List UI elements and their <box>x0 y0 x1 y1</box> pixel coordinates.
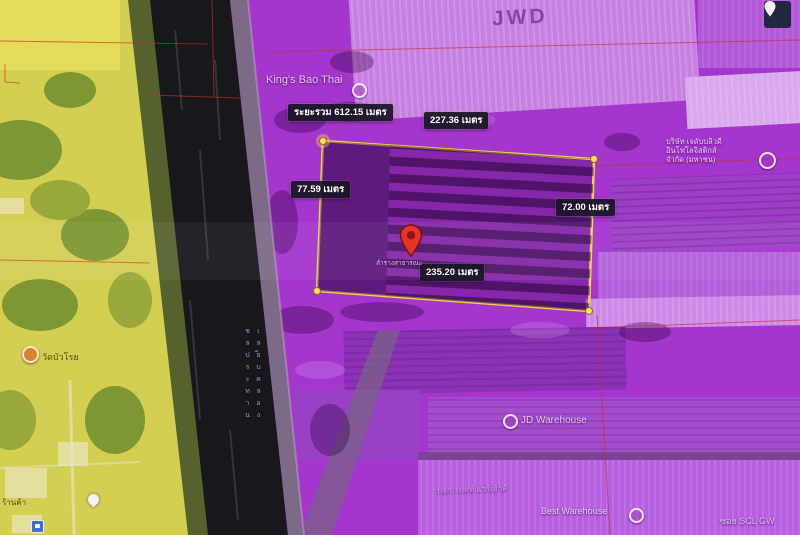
map-pin-icon <box>398 223 424 259</box>
road-name-label: เลียบคลองชลประทาน <box>242 326 264 456</box>
measurement-chip-right: 72.00 เมตร <box>556 199 615 216</box>
poi-marker-jd-warehouse[interactable] <box>503 414 518 429</box>
measurement-chip-total: ระยะรวม 612.15 เมตร <box>288 104 393 121</box>
place-label-shop: ร้านค้า <box>2 496 26 509</box>
measurement-chip-bottom: 235.20 เมตร <box>420 264 484 281</box>
measurement-chip-left: 77.59 เมตร <box>291 181 350 198</box>
map-pin-button[interactable] <box>764 1 791 28</box>
place-label-temple: วัดบัวโรย <box>42 350 79 364</box>
place-label-kings-bao: King's Bao Thai <box>266 74 343 86</box>
poi-marker-best-warehouse[interactable] <box>629 508 644 523</box>
place-label-jd-warehouse: JD Warehouse <box>521 415 587 426</box>
poi-marker-kings-bao[interactable] <box>352 83 367 98</box>
map-canvas[interactable]: JWD King's Bao Thai บริษัท เจดับบลิวดี อ… <box>0 0 800 535</box>
transit-stop-icon[interactable] <box>31 520 44 533</box>
poi-marker-temple[interactable] <box>22 346 39 363</box>
place-label-soi: ซอย SCL GW <box>720 514 774 528</box>
place-label-company: บริษัท เจดับบลิวดี อินโฟโลจิสติกส์ จำกัด… <box>666 137 760 164</box>
pin-glyph-icon <box>764 1 776 17</box>
place-label-best-company: บจก. เบสท์ แวร์เฮ้าส์ <box>437 482 508 497</box>
poi-marker-company[interactable] <box>759 152 776 169</box>
place-label-best-warehouse: Best Warehouse <box>541 506 607 516</box>
pin-caption: ลำรางสาธารณะ <box>376 258 422 268</box>
measurement-chip-top: 227.36 เมตร <box>424 112 488 129</box>
jwd-roof-label: JWD <box>491 5 548 32</box>
